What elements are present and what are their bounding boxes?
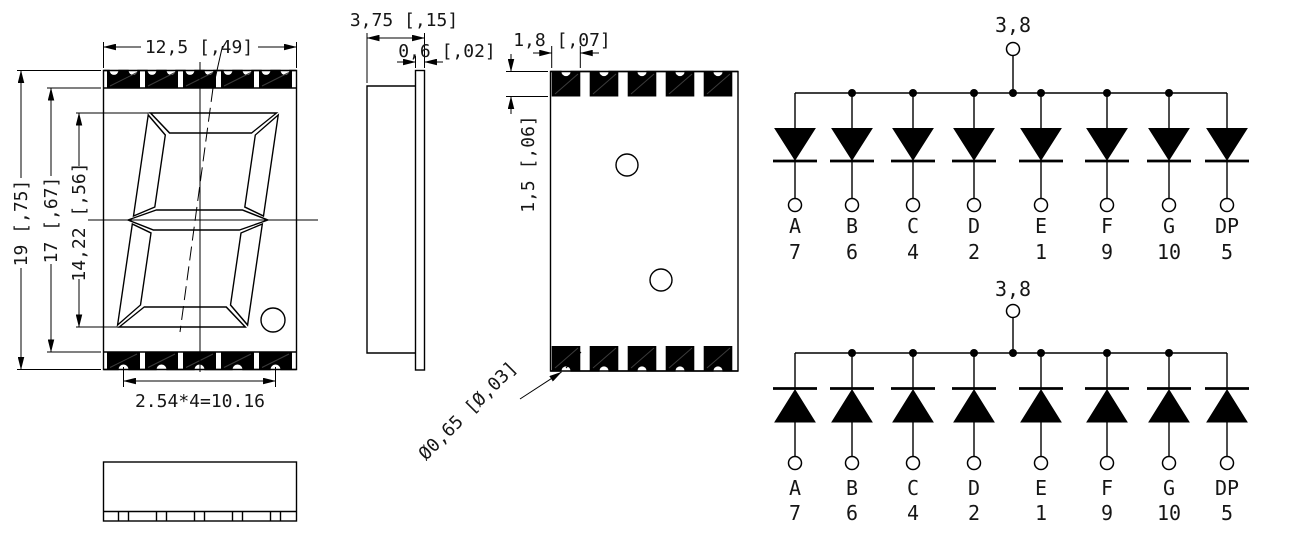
segment-letter: F (1101, 476, 1113, 500)
pin-terminal (1221, 457, 1234, 470)
pin-number: 5 (1221, 501, 1233, 525)
pin-number: 1 (1035, 240, 1047, 264)
diode-column-g: G 10 (1147, 93, 1191, 264)
drawing-svg: 12,5 [,49] 19 [,75] 17 [,67] 14,22 [,56] (0, 0, 1293, 541)
diode-column-a: A 7 (773, 93, 817, 264)
segment-a (148, 113, 277, 133)
segment-letter: C (907, 214, 919, 238)
segment-letter: E (1035, 214, 1047, 238)
segment-letter: B (846, 476, 858, 500)
pin-number: 6 (846, 501, 858, 525)
segment-f (133, 115, 168, 216)
diode-column-d: D 2 (952, 353, 996, 525)
segment-letter: A (789, 214, 801, 238)
pin-number: 1 (1035, 501, 1047, 525)
front-view: 12,5 [,49] 19 [,75] 17 [,67] 14,22 [,56] (11, 37, 318, 412)
dim-depth-label: 3,75 [,15] (350, 10, 458, 31)
dim-pad-width-label: 1,8 [,07] (513, 30, 611, 51)
segment-letter: D (968, 214, 980, 238)
common-cathode-circuit: 3,8 A 7 B 6 (773, 277, 1249, 525)
dim-pad-height-label: 1,5 [,06] (518, 115, 539, 213)
diode-column-e: E 1 (1019, 93, 1063, 264)
back-outline (551, 72, 739, 372)
common-pin-label: 3,8 (995, 277, 1031, 301)
dim-pad-width: 1,8 [,07] (513, 30, 611, 68)
pin-terminal (1035, 199, 1048, 212)
bottom-view (104, 462, 297, 521)
bottom-pad-edges (119, 512, 281, 522)
segment-letter: C (907, 476, 919, 500)
diode-column-c: C 4 (891, 353, 935, 525)
dim-width-label: 12,5 [,49] (145, 37, 253, 58)
diode-column-d: D 2 (952, 93, 996, 264)
segment-letter: D (968, 476, 980, 500)
common-anode-circuit: 3,8 A 7 B 6 (773, 13, 1249, 264)
pin-terminal (846, 457, 859, 470)
diode-column-e: E 1 (1019, 353, 1063, 525)
segment-letter: A (789, 476, 801, 500)
side-view: 3,75 [,15] 0,6 [,02] (350, 10, 496, 370)
alignment-hole (616, 154, 638, 176)
pin-terminal (907, 457, 920, 470)
common-pin-label: 3,8 (995, 13, 1031, 37)
pin-number: 2 (968, 501, 980, 525)
diode-column-b: B 6 (830, 353, 874, 525)
segment-letter: F (1101, 214, 1113, 238)
pin-terminal (968, 457, 981, 470)
common-pin-terminal (1007, 43, 1020, 56)
decimal-point (261, 308, 285, 332)
pin-number: 10 (1157, 240, 1181, 264)
back-bottom-pads (551, 346, 739, 376)
pin-number: 6 (846, 240, 858, 264)
dim-height-inner-label: 17 [,67] (41, 177, 62, 264)
diode-column-dp: DP 5 (1205, 93, 1249, 264)
segment-c (228, 224, 263, 325)
segment-letter: DP (1215, 476, 1239, 500)
back-view: 1,8 [,07] 1,5 [,06] Ø0,65 [Ø,03] (415, 30, 738, 465)
segment-letter: DP (1215, 214, 1239, 238)
pin-number: 4 (907, 501, 919, 525)
diode-column-f: F 9 (1085, 93, 1129, 264)
pin-terminal (1163, 457, 1176, 470)
segment-letter: G (1163, 476, 1175, 500)
dim-substrate: 0,6 [,02] (397, 41, 496, 68)
common-pin-terminal (1007, 305, 1020, 318)
pin-number: 10 (1157, 501, 1181, 525)
body-outline (367, 86, 416, 353)
segment-d (119, 307, 248, 327)
dim-notch-diameter-label: Ø0,65 [Ø,03] (415, 358, 522, 465)
segment-letter: B (846, 214, 858, 238)
pin-terminal (1101, 457, 1114, 470)
substrate-outline (416, 71, 425, 371)
pin-terminal (846, 199, 859, 212)
pin-number: 7 (789, 240, 801, 264)
pin-number: 2 (968, 240, 980, 264)
pin-terminal (789, 457, 802, 470)
dim-height-overall-label: 19 [,75] (11, 180, 32, 267)
dim-height-digit-label: 14,22 [,56] (69, 162, 90, 281)
alignment-hole (650, 269, 672, 291)
dim-pad-height: 1,5 [,06] (506, 54, 548, 213)
dim-substrate-label: 0,6 [,02] (398, 41, 496, 62)
back-top-pads (551, 67, 739, 97)
diode-column-f: F 9 (1085, 353, 1129, 525)
diode-column-c: C 4 (891, 93, 935, 264)
dim-pad-pitch-label: 2.54*4=10.16 (135, 391, 265, 412)
pin-terminal (1163, 199, 1176, 212)
pin-terminal (1035, 457, 1048, 470)
pin-number: 7 (789, 501, 801, 525)
pin-number: 9 (1101, 240, 1113, 264)
pin-terminal (1101, 199, 1114, 212)
segment-letter: G (1163, 214, 1175, 238)
pin-number: 4 (907, 240, 919, 264)
pin-terminal (907, 199, 920, 212)
pin-terminal (789, 199, 802, 212)
diode-column-g: G 10 (1147, 353, 1191, 525)
diode-column-dp: DP 5 (1205, 353, 1249, 525)
segment-letter: E (1035, 476, 1047, 500)
pin-number: 9 (1101, 501, 1113, 525)
diode-column-a: A 7 (773, 353, 817, 525)
pin-number: 5 (1221, 240, 1233, 264)
datasheet-drawing: 12,5 [,49] 19 [,75] 17 [,67] 14,22 [,56] (0, 0, 1293, 541)
pin-terminal (1221, 199, 1234, 212)
pin-terminal (968, 199, 981, 212)
diode-column-b: B 6 (830, 93, 874, 264)
